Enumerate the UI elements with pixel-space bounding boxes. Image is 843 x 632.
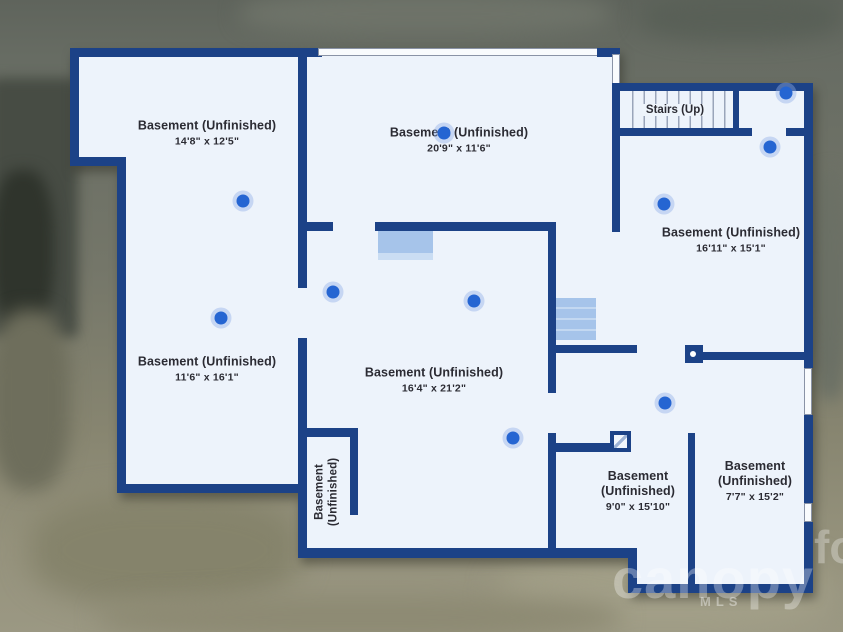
wall	[612, 83, 620, 232]
room-name: Basement (Unfinished)	[339, 125, 579, 140]
window-right-lower	[804, 503, 812, 522]
room-label-bottom-right: Basement (Unfinished) 7'7" x 15'2"	[703, 459, 807, 503]
wall	[628, 584, 812, 593]
wall	[688, 352, 812, 360]
wall	[300, 548, 637, 558]
camera-marker[interactable]	[327, 286, 340, 299]
room-dims: 7'7" x 15'2"	[703, 491, 807, 503]
room-name: Basement (Unfinished)	[102, 354, 312, 369]
room-label-right: Basement (Unfinished) 16'11" x 15'1"	[626, 225, 836, 254]
camera-marker[interactable]	[215, 312, 228, 325]
wall	[350, 428, 358, 515]
window-top	[318, 48, 599, 56]
floorplan-screenshot: Basement (Unfinished) 14'8" x 12'5" Base…	[0, 0, 843, 632]
room-name: Basement (Unfinished)	[92, 118, 322, 133]
camera-marker[interactable]	[658, 198, 671, 211]
room-label-top-middle: Basement (Unfinished) 20'9" x 11'6"	[339, 125, 579, 154]
stairs-label: Stairs (Up)	[643, 104, 707, 116]
floorplan: Basement (Unfinished) 14'8" x 12'5" Base…	[0, 0, 843, 632]
camera-marker[interactable]	[438, 127, 451, 140]
camera-marker[interactable]	[764, 141, 777, 154]
wall	[300, 222, 333, 231]
wall	[733, 85, 739, 132]
room-name: Basement (Unfinished)	[626, 225, 836, 240]
wall	[612, 128, 752, 136]
camera-marker[interactable]	[659, 397, 672, 410]
room-label-closet: Basement (Unfinished)	[313, 442, 340, 542]
wall	[298, 48, 307, 288]
wall	[117, 484, 307, 493]
room-dims: 11'6" x 16'1"	[102, 371, 312, 383]
wall	[70, 48, 79, 166]
room-dims: 16'11" x 15'1"	[626, 242, 836, 254]
camera-marker[interactable]	[468, 295, 481, 308]
room-name: Basement (Unfinished)	[319, 365, 549, 380]
room-floor-top-left-lower	[117, 155, 307, 247]
room-dims: 16'4" x 21'2"	[319, 382, 549, 394]
room-label-bottom-middle: Basement (Unfinished) 9'0" x 15'10"	[582, 469, 694, 513]
room-name: Basement (Unfinished)	[313, 442, 340, 542]
door-hinge-marker	[685, 345, 703, 363]
wall	[804, 522, 813, 593]
wall	[548, 222, 556, 393]
stairs-fixture-right	[556, 298, 596, 340]
wall	[117, 157, 126, 493]
support-post-inner	[614, 435, 627, 448]
stairs-fixture-center	[378, 231, 433, 260]
room-label-center: Basement (Unfinished) 16'4" x 21'2"	[319, 365, 549, 394]
wall	[786, 128, 812, 136]
wall	[375, 222, 556, 231]
room-name: Basement (Unfinished)	[582, 469, 694, 499]
room-name: Basement (Unfinished)	[703, 459, 807, 489]
room-dims: 14'8" x 12'5"	[92, 135, 322, 147]
camera-marker[interactable]	[237, 195, 250, 208]
wall	[548, 443, 612, 452]
window-top-right	[612, 54, 620, 85]
wall	[548, 345, 637, 353]
wall	[70, 48, 307, 57]
camera-marker[interactable]	[507, 432, 520, 445]
room-dims: 20'9" x 11'6"	[339, 142, 579, 154]
room-label-left-middle: Basement (Unfinished) 11'6" x 16'1"	[102, 354, 312, 383]
camera-marker[interactable]	[780, 87, 793, 100]
window-right-upper	[804, 368, 812, 415]
hinge-dot	[690, 351, 696, 357]
support-post	[610, 431, 631, 452]
room-dims: 9'0" x 15'10"	[582, 501, 694, 513]
room-label-top-left: Basement (Unfinished) 14'8" x 12'5"	[92, 118, 322, 147]
wall	[688, 433, 695, 593]
